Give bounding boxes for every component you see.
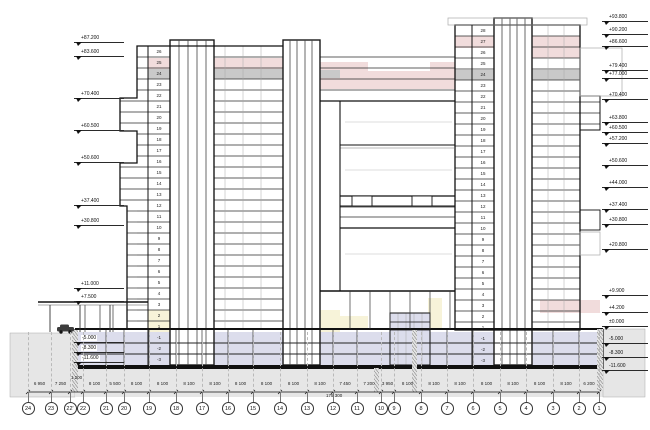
floor-number-left: -3 (148, 354, 170, 365)
elevation-flag-icon (604, 34, 610, 38)
elevation-flag-icon (76, 301, 82, 305)
floor-number-right: 26 (472, 47, 494, 58)
dimension-value: 7 250 (46, 381, 76, 386)
floor-number-left: 21 (148, 101, 170, 112)
floor-number-left: 2 (148, 310, 170, 321)
floor-number-left: 13 (148, 189, 170, 200)
dimension-value: 8 100 (393, 381, 423, 386)
grid-bubble: 18 (170, 402, 183, 415)
elevation-flag-icon (604, 249, 610, 253)
elevation-marker-left: +11.000 (74, 281, 124, 289)
floor-number-left: 19 (148, 123, 170, 134)
elevation-marker-right: +44.000 (602, 180, 648, 188)
elevation-marker-left: -8.300 (74, 345, 124, 353)
elevation-flag-icon (76, 130, 82, 134)
floor-number-left: 18 (148, 134, 170, 145)
grid-axis-leader (176, 392, 177, 402)
grid-bubble: 14 (274, 402, 287, 415)
dimension-value: 8 100 (445, 381, 475, 386)
floor-number-left: 9 (148, 233, 170, 244)
grid-axis-leader (579, 392, 580, 402)
elevation-flag-icon (604, 187, 610, 191)
floor-number-left: 11 (148, 211, 170, 222)
grid-axis-leader (124, 392, 125, 402)
elevation-marker-left: +50.600 (74, 155, 124, 163)
car-icon (57, 325, 74, 334)
floor-number-right: 1 (472, 322, 494, 333)
grid-bubble: 20 (118, 402, 131, 415)
elevation-marker-left: -5.000 (74, 335, 124, 343)
grid-axis-leader (228, 392, 229, 402)
grid-axis-leader (447, 392, 448, 402)
grid-axis-leader (553, 392, 554, 402)
dimension-value: 8 100 (525, 381, 555, 386)
floor-number-left: 6 (148, 266, 170, 277)
elevation-marker-right: +90.200 (602, 27, 648, 35)
elevation-marker-right: +77.000 (602, 71, 648, 79)
grid-bubble: 10 (375, 402, 388, 415)
floor-number-left: 20 (148, 112, 170, 123)
floor-number-right: -1 (472, 333, 494, 344)
grid-axis-leader (333, 392, 334, 402)
floor-number-left: 14 (148, 178, 170, 189)
dimension-value: 6 200 (574, 381, 604, 386)
floor-number-right: 9 (472, 234, 494, 245)
grid-axis-leader (28, 392, 29, 402)
elevation-marker-right: +60.500 (602, 125, 648, 133)
floor-number-left: 1 (148, 321, 170, 332)
floor-number-right: 11 (472, 212, 494, 223)
grid-bubble: 8 (415, 402, 428, 415)
floor-number-right: 18 (472, 135, 494, 146)
elevation-marker-left: +37.400 (74, 198, 124, 206)
floor-number-right: 4 (472, 289, 494, 300)
floor-number-left: 22 (148, 90, 170, 101)
elevation-flag-icon (76, 98, 82, 102)
floor-number-right: 20 (472, 113, 494, 124)
floor-number-right: 24 (472, 69, 494, 80)
elevation-marker-left: +70.400 (74, 91, 124, 99)
elevation-marker-right: +20.800 (602, 242, 648, 250)
elevation-flag-icon (604, 224, 610, 228)
grid-bubble: 12 (327, 402, 340, 415)
floor-number-right: 14 (472, 179, 494, 190)
grid-bubble: 7 (441, 402, 454, 415)
grid-axis-leader (526, 392, 527, 402)
elevation-flag-icon (604, 295, 610, 299)
elevation-flag-icon (604, 209, 610, 213)
floor-number-right: 13 (472, 190, 494, 201)
floor-number-left: 24 (148, 68, 170, 79)
grid-bubble: 15 (247, 402, 260, 415)
floor-number-right: 5 (472, 278, 494, 289)
dimension-value: 8 100 (472, 381, 502, 386)
grid-axis-leader (500, 392, 501, 402)
grid-axis-leader (357, 392, 358, 402)
floor-number-right: 2 (472, 311, 494, 322)
elevation-marker-right: -8.300 (602, 350, 648, 358)
elevation-flag-icon (604, 343, 610, 347)
grid-bubble: 16 (222, 402, 235, 415)
retaining-wall-hatch (374, 368, 379, 392)
floor-number-right: 22 (472, 91, 494, 102)
dimension-value: 8 100 (498, 381, 528, 386)
elevation-marker-right: +79.400 (602, 63, 648, 71)
floor-number-right: 15 (472, 168, 494, 179)
elevation-flag-icon (604, 312, 610, 316)
grid-bubble: 22 (77, 402, 90, 415)
grid-axis-leader (394, 392, 395, 402)
floor-number-left: 15 (148, 167, 170, 178)
elevation-flag-icon (604, 46, 610, 50)
elevation-marker-right: +70.400 (602, 92, 648, 100)
floor-number-left: 8 (148, 244, 170, 255)
grid-axis-leader (70, 392, 71, 402)
elevation-flag-icon (604, 165, 610, 169)
floor-number-right: -3 (472, 355, 494, 366)
elevation-marker-right: +9.900 (602, 288, 648, 296)
elevation-flag-icon (604, 370, 610, 374)
elevation-flag-icon (604, 357, 610, 361)
grid-axis-leader (280, 392, 281, 402)
floor-number-right: 7 (472, 256, 494, 267)
foundation-slab (75, 365, 603, 369)
elevation-flag-icon (604, 21, 610, 25)
grid-bubble: 17 (196, 402, 209, 415)
floor-number-left: -1 (148, 332, 170, 343)
grid-axis-leader (149, 392, 150, 402)
elevation-marker-left: +87.200 (74, 35, 124, 43)
elevation-flag-icon (76, 42, 82, 46)
floor-number-left: 4 (148, 288, 170, 299)
elevation-flag-icon (76, 225, 82, 229)
elevation-marker-left: +60.500 (74, 123, 124, 131)
grid-axis-leader (202, 392, 203, 402)
grid-bubble: 5 (494, 402, 507, 415)
elevation-marker-left: -11.600 (74, 355, 124, 363)
grid-bubble: 4 (520, 402, 533, 415)
elevation-marker-right: +50.600 (602, 158, 648, 166)
elevation-flag-icon (76, 362, 82, 366)
elevation-flag-icon (604, 143, 610, 147)
floor-number-right: 8 (472, 245, 494, 256)
grid-bubble: 13 (301, 402, 314, 415)
grid-bubble: 6 (467, 402, 480, 415)
elevation-marker-right: +37.400 (602, 202, 648, 210)
elevation-marker-left: +7.500 (74, 294, 124, 302)
left-core (170, 40, 214, 365)
grid-axis-leader (51, 392, 52, 402)
grid-bubble: 22' (64, 402, 77, 415)
elevation-marker-right: -11.600 (602, 363, 648, 371)
elevation-marker-right: -5.000 (602, 336, 648, 344)
floor-number-left: 25 (148, 57, 170, 68)
floor-number-right: 10 (472, 223, 494, 234)
architectural-section-drawing: 175 300 +87.200+83.600+70.400+60.500+50.… (0, 0, 650, 430)
grid-bubble: 21 (100, 402, 113, 415)
grid-axis-leader (473, 392, 474, 402)
floor-number-left: 17 (148, 145, 170, 156)
elevation-flag-icon (604, 78, 610, 82)
grid-bubble: 11 (351, 402, 364, 415)
floor-number-right: 21 (472, 102, 494, 113)
floor-number-left: -2 (148, 343, 170, 354)
floor-number-right: 16 (472, 157, 494, 168)
elevation-flag-icon (76, 288, 82, 292)
grid-axis-leader (421, 392, 422, 402)
grid-axis-leader (253, 392, 254, 402)
elevation-marker-right: +57.200 (602, 136, 648, 144)
elevation-marker-right: +30.800 (602, 217, 648, 225)
overall-dimension: 175 300 (326, 393, 342, 398)
middle-core (283, 40, 320, 365)
grid-bubble: 23 (45, 402, 58, 415)
floor-number-right: 23 (472, 80, 494, 91)
floor-number-right: 12 (472, 201, 494, 212)
floor-number-right: 19 (472, 124, 494, 135)
elevation-marker-right: +4.200 (602, 305, 648, 313)
grid-axis-leader (106, 392, 107, 402)
elevation-marker-right: +93.800 (602, 14, 648, 22)
grid-bubble: 1 (593, 402, 606, 415)
elevation-marker-right: ±0.000 (602, 319, 648, 327)
grid-axis-leader (381, 392, 382, 402)
elevation-flag-icon (76, 56, 82, 60)
elevation-marker-right: +63.800 (602, 115, 648, 123)
dimension-value: 8 100 (148, 381, 178, 386)
dimension-value: 1 200 (62, 375, 92, 380)
floor-number-right: -2 (472, 344, 494, 355)
grid-bubble: 24 (22, 402, 35, 415)
dimension-value: 8 100 (252, 381, 282, 386)
floor-number-right: 3 (472, 300, 494, 311)
floor-number-right: 17 (472, 146, 494, 157)
elevation-marker-left: +30.800 (74, 218, 124, 226)
elevation-flag-icon (604, 99, 610, 103)
elevation-flag-icon (76, 162, 82, 166)
floor-number-right: 6 (472, 267, 494, 278)
floor-number-left: 26 (148, 46, 170, 57)
floor-number-left: 7 (148, 255, 170, 266)
elevation-flag-icon (76, 205, 82, 209)
grid-bubble: 19 (143, 402, 156, 415)
grid-axis-leader (599, 392, 600, 402)
floor-number-right: 27 (472, 36, 494, 47)
floor-number-left: 5 (148, 277, 170, 288)
floor-number-left: 12 (148, 200, 170, 211)
floor-number-left: 3 (148, 299, 170, 310)
floor-number-right: 28 (472, 25, 494, 36)
grid-bubble: 3 (547, 402, 560, 415)
dimension-value: 8 100 (279, 381, 309, 386)
elevation-marker-right: +86.600 (602, 39, 648, 47)
right-core (494, 18, 532, 365)
floor-number-right: 25 (472, 58, 494, 69)
grid-bubble: 9 (388, 402, 401, 415)
grid-axis-leader (307, 392, 308, 402)
elevation-flag-icon (604, 326, 610, 330)
elevation-marker-left: +83.600 (74, 49, 124, 57)
grid-axis-leader (83, 392, 84, 402)
floor-number-left: 16 (148, 156, 170, 167)
floor-number-left: 10 (148, 222, 170, 233)
grid-bubble: 2 (573, 402, 586, 415)
entrance-canopy (38, 302, 148, 332)
floor-number-left: 23 (148, 79, 170, 90)
